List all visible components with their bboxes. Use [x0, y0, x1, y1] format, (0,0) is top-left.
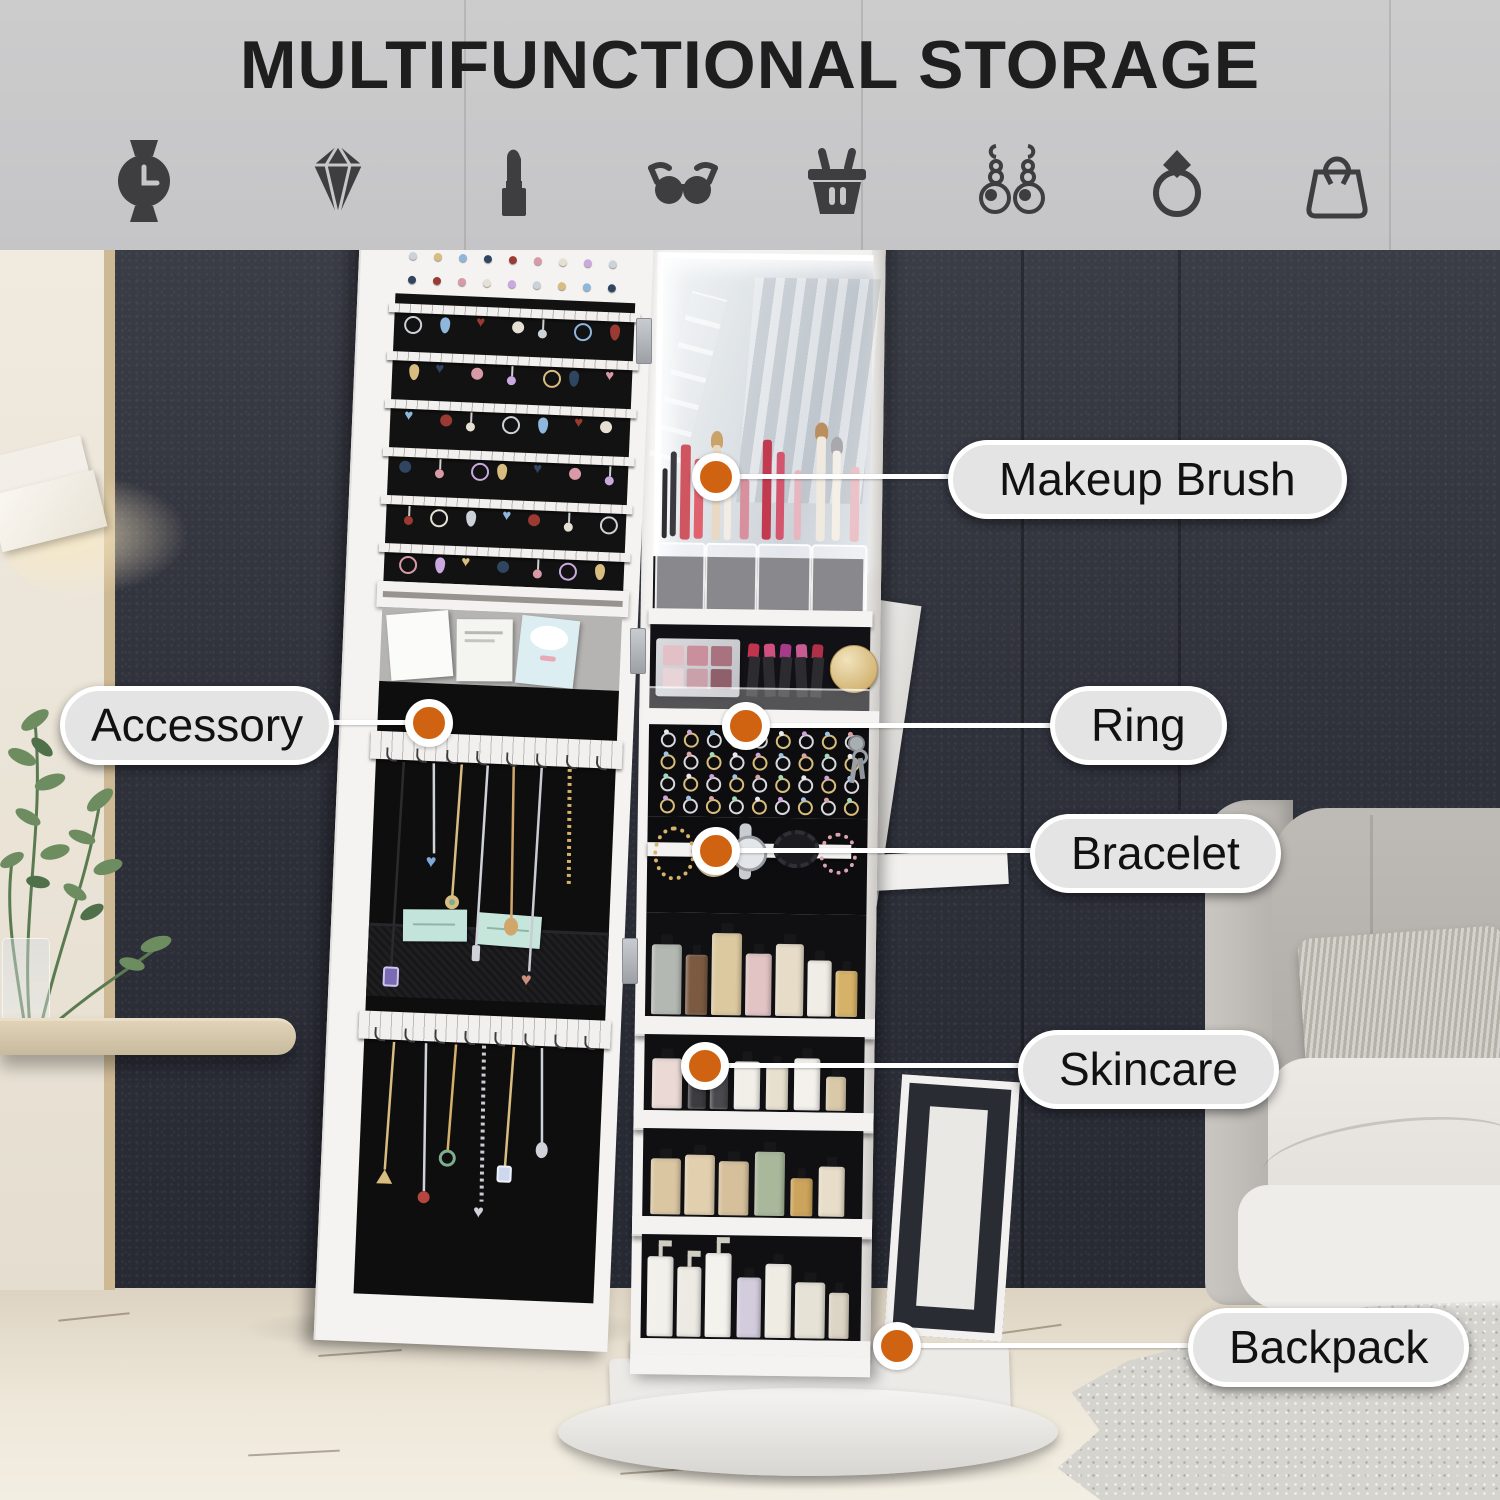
- bottle-cap: [815, 950, 825, 960]
- earring: ♥: [435, 361, 445, 376]
- earring: [559, 562, 578, 581]
- earring: [409, 364, 420, 380]
- earring: [404, 516, 413, 525]
- bottle: [736, 1277, 761, 1337]
- skincare-shelf: [640, 1234, 861, 1341]
- earring: [408, 506, 410, 516]
- bracelet-storage: [646, 816, 867, 915]
- earring: [600, 516, 619, 535]
- handbag-icon: [1292, 136, 1382, 226]
- earring: [569, 468, 581, 480]
- ring-item: [798, 778, 813, 793]
- ring-gem: [802, 731, 807, 736]
- ring-gem: [710, 730, 715, 735]
- ring-item: [821, 779, 836, 794]
- earring: [466, 422, 475, 431]
- brush-handle: [794, 470, 802, 540]
- stud-earring: [409, 252, 417, 260]
- earring-bar: [389, 303, 641, 323]
- bottle-cap: [835, 1283, 843, 1293]
- bottle: [764, 1264, 791, 1338]
- sunglasses-icon: [638, 136, 728, 226]
- hinge: [636, 318, 652, 364]
- cabinet-bottom: [630, 1354, 870, 1377]
- necklaces: ♥ ♥: [365, 761, 615, 1021]
- earring: [430, 509, 449, 528]
- ring-item: [798, 800, 813, 815]
- vase: [2, 938, 50, 1026]
- bottle-cap: [660, 1148, 672, 1158]
- ring-item: [798, 756, 813, 771]
- ring-icon: [1132, 136, 1222, 226]
- ring-gem: [687, 730, 692, 735]
- earring-bar: [383, 447, 635, 467]
- bottle: [807, 960, 832, 1016]
- mask-art: [540, 655, 556, 662]
- ring-gem: [686, 796, 691, 801]
- ring-gem: [732, 796, 737, 801]
- bottle: [766, 1066, 789, 1110]
- hook: [536, 754, 548, 768]
- ring-item: [752, 778, 767, 793]
- ring-item: [660, 776, 675, 791]
- earring: [497, 561, 509, 573]
- earring: [574, 323, 593, 342]
- ring-item: [684, 733, 699, 748]
- bottle-cap: [773, 1254, 784, 1264]
- callout-label-ring: Ring: [1050, 686, 1227, 765]
- ring-gem: [733, 752, 738, 757]
- stud-earring: [483, 279, 491, 287]
- ring-item: [707, 733, 722, 748]
- bottle-cap: [694, 1145, 706, 1155]
- bottle-cap: [832, 1067, 840, 1077]
- bottle-cap: [754, 944, 765, 954]
- earring: [600, 421, 612, 433]
- earring: [538, 329, 547, 338]
- earring: [610, 324, 621, 340]
- svg-text:♥: ♥: [473, 1201, 485, 1221]
- callout-label-backpack: Backpack: [1188, 1308, 1469, 1387]
- ring-gem: [687, 752, 692, 757]
- earring: [471, 463, 490, 482]
- necklaces: ♥: [354, 1041, 604, 1296]
- stud-earring: [608, 284, 616, 292]
- bottle-cap: [661, 934, 673, 944]
- ring-item: [822, 735, 837, 750]
- ring-item: [752, 756, 767, 771]
- hinge: [630, 628, 646, 674]
- sheet-mask: [515, 615, 580, 689]
- sheet-mask: [456, 619, 512, 681]
- callout-dot-accessory: [405, 699, 453, 747]
- ring-gem: [709, 796, 714, 801]
- hook: [566, 755, 578, 769]
- eyeshadow-pan: [711, 646, 732, 666]
- ring-gem: [824, 798, 829, 803]
- earring: [609, 466, 611, 476]
- earring-bar: [379, 543, 631, 563]
- callout-dot-backpack: [873, 1322, 921, 1370]
- bottle: [794, 1282, 825, 1338]
- earring: [537, 559, 539, 569]
- brush-handle: [680, 445, 691, 540]
- sheet-mask: [386, 610, 453, 681]
- svg-text:♥: ♥: [425, 851, 437, 871]
- stud-earring: [559, 258, 567, 266]
- necklace-panel: ♥ ♥ ♥: [354, 681, 619, 1304]
- bracelet-gold-chain: [653, 826, 696, 881]
- skincare-shelf: [642, 1128, 863, 1219]
- bottle-cap: [728, 1151, 740, 1161]
- earring: [439, 459, 441, 469]
- eyeshadow-pan: [687, 646, 708, 666]
- product-infographic: MULTIFUNCTIONAL STORAGE: [0, 0, 1500, 1500]
- rotating-base-disc: [558, 1388, 1058, 1476]
- bottle-cap: [745, 1267, 755, 1277]
- earring-panel: ♥♥♥♥♥♥♥♥: [383, 293, 635, 591]
- brush-handle: [762, 440, 772, 540]
- earring: [404, 316, 423, 335]
- ring-item: [661, 732, 676, 747]
- stud-earring: [583, 283, 591, 291]
- ring-item: [660, 798, 675, 813]
- bottle: [754, 1152, 785, 1216]
- earring: ♥: [502, 508, 512, 523]
- ring-item: [775, 800, 790, 815]
- callout-line-ring: [746, 723, 1052, 728]
- bottle: [828, 1293, 849, 1339]
- callout-line-skincare: [705, 1063, 1020, 1068]
- ring-item: [706, 799, 721, 814]
- earring: ♥: [605, 368, 615, 383]
- earring: [399, 556, 418, 575]
- bottle-cap: [784, 934, 795, 944]
- rear-shelf: [884, 1074, 1020, 1342]
- page-title: MULTIFUNCTIONAL STORAGE: [0, 26, 1500, 104]
- stud-earring: [509, 256, 517, 264]
- earring: [533, 569, 542, 578]
- stud-earring: [508, 280, 516, 288]
- bottle: [826, 1077, 846, 1111]
- ring-gem: [664, 751, 669, 756]
- earring: ♥: [574, 415, 584, 430]
- bottle-cap: [802, 1048, 813, 1058]
- bottle: [676, 1267, 701, 1337]
- earring: [470, 412, 472, 422]
- bottle: [685, 955, 708, 1015]
- brush-handle: [740, 479, 750, 539]
- shopping-basket-icon: [792, 136, 882, 226]
- earring: [605, 476, 614, 485]
- stud-earring: [534, 257, 542, 265]
- bottle: [818, 1167, 845, 1217]
- diamond-icon: [293, 136, 383, 226]
- bottle-cap: [842, 961, 851, 971]
- ring-gem: [755, 775, 760, 780]
- palette-pans: [663, 645, 734, 690]
- makeup-brush-area: [653, 496, 867, 617]
- earring: [440, 317, 451, 333]
- bottle: [711, 933, 742, 1015]
- ring-gem: [778, 797, 783, 802]
- bottle-cap: [721, 923, 733, 933]
- stud-earring: [609, 260, 617, 268]
- pump-nozzle: [717, 1237, 730, 1243]
- hook: [416, 748, 428, 762]
- makeup-shelf: [649, 624, 870, 711]
- bottle: [650, 1158, 681, 1214]
- earrings-icon: [968, 136, 1058, 226]
- hook: [374, 1027, 386, 1041]
- bottle-cap: [804, 1272, 816, 1282]
- earring: [440, 414, 452, 426]
- ring-gem: [663, 795, 668, 800]
- ring-item: [821, 800, 836, 815]
- ring-item: [775, 756, 790, 771]
- earring: [507, 376, 516, 385]
- sheet-mask-pocket: [379, 607, 622, 691]
- stud-earring: [459, 254, 467, 262]
- earring: ♥: [533, 461, 543, 476]
- callout-label-accessory: Accessory: [60, 686, 334, 765]
- brush-handle: [832, 451, 841, 541]
- ring-gem: [825, 732, 830, 737]
- ring-gem: [801, 775, 806, 780]
- stud-earring: [558, 282, 566, 290]
- bottle: [745, 953, 772, 1015]
- brush-handle: [816, 436, 826, 541]
- mask-art: [529, 624, 569, 652]
- callout-dot-ring: [722, 702, 770, 750]
- wall-seam: [1021, 250, 1024, 1290]
- bottle: [790, 1178, 813, 1216]
- earring: [528, 514, 540, 526]
- callout-line-bracelet: [716, 848, 1032, 853]
- earring: [502, 416, 521, 435]
- callout-line-backpack: [897, 1343, 1190, 1348]
- ring-gem: [779, 753, 784, 758]
- brush-handle: [662, 468, 668, 538]
- earring: [497, 464, 508, 480]
- ring-gem: [778, 775, 783, 780]
- earring: [568, 513, 570, 523]
- mask-print: [465, 631, 503, 634]
- earring: [512, 321, 524, 333]
- ring-gem: [779, 731, 784, 736]
- ring-item: [683, 777, 698, 792]
- bottle-cap: [827, 1157, 838, 1167]
- stud-earring: [584, 259, 592, 267]
- earring: [435, 557, 446, 573]
- beaded-bracelet: [819, 832, 858, 875]
- hook: [386, 747, 398, 761]
- mask-print: [465, 639, 495, 642]
- header-banner: MULTIFUNCTIONAL STORAGE: [0, 0, 1500, 250]
- ring-item: [799, 734, 814, 749]
- stud-earring: [484, 255, 492, 263]
- acrylic-cup: [811, 544, 868, 617]
- ring-gem: [755, 797, 760, 802]
- ring-item: [821, 757, 836, 772]
- callout-label-makeup-brush: Makeup Brush: [948, 440, 1347, 519]
- callout-label-skincare: Skincare: [1018, 1030, 1279, 1109]
- skincare-shelf: [645, 912, 866, 1019]
- ring-gem: [663, 773, 668, 778]
- ring-gem: [686, 774, 691, 779]
- ring-item: [729, 799, 744, 814]
- ring-item: [706, 777, 721, 792]
- hook: [434, 1030, 446, 1044]
- ring-gem: [801, 797, 806, 802]
- brush-handle: [670, 451, 677, 536]
- skincare-shelf: [644, 1034, 865, 1113]
- shelf-groove: [383, 591, 623, 607]
- hook: [404, 1028, 416, 1042]
- hook: [476, 751, 488, 765]
- bottle-cap: [742, 1051, 753, 1061]
- bottle: [647, 1256, 674, 1336]
- pump-nozzle: [688, 1251, 701, 1257]
- bottle-cap: [692, 945, 701, 955]
- ring-gem: [802, 753, 807, 758]
- svg-text:♥: ♥: [520, 969, 532, 989]
- ring-gem: [732, 774, 737, 779]
- stud-earring: [433, 277, 441, 285]
- earring: [595, 564, 606, 580]
- eyeshadow-pan: [663, 645, 684, 665]
- hook: [554, 1035, 566, 1049]
- bottle: [651, 944, 682, 1014]
- hook: [584, 1036, 596, 1050]
- hook: [506, 752, 518, 766]
- callout-line-makeup-brush: [716, 474, 950, 479]
- brush-handle: [776, 452, 785, 540]
- ring-item: [683, 755, 698, 770]
- earring: [435, 469, 444, 478]
- earring: [538, 417, 549, 433]
- ring-item: [729, 777, 744, 792]
- earring: [542, 319, 544, 329]
- stud-earring: [533, 281, 541, 289]
- earring: [471, 367, 483, 379]
- bottle-cap: [661, 1048, 673, 1058]
- ring-item: [776, 734, 791, 749]
- ring-gem: [824, 776, 829, 781]
- hook: [494, 1032, 506, 1046]
- callout-dot-bracelet: [692, 827, 740, 875]
- ring-gem: [847, 798, 852, 803]
- callout-label-bracelet: Bracelet: [1030, 814, 1281, 893]
- ring-item: [775, 778, 790, 793]
- ring-item: [683, 799, 698, 814]
- pump-nozzle: [659, 1240, 672, 1246]
- bottle: [775, 944, 804, 1016]
- earring: ♥: [476, 315, 486, 330]
- ring-item: [660, 754, 675, 769]
- earring: [511, 366, 513, 376]
- ring-gem: [756, 753, 761, 758]
- earring: ♥: [404, 408, 414, 423]
- bottle: [684, 1155, 715, 1215]
- ring-item: [706, 755, 721, 770]
- ring-item: [844, 801, 859, 816]
- bottle: [704, 1253, 731, 1337]
- bottle: [734, 1061, 761, 1109]
- hook: [446, 750, 458, 764]
- ring-item: [752, 800, 767, 815]
- ring-gem: [710, 752, 715, 757]
- hook: [464, 1031, 476, 1045]
- stud-earring: [458, 278, 466, 286]
- earring: [543, 369, 562, 388]
- earring: [399, 461, 411, 473]
- acrylic-cup: [705, 543, 758, 616]
- bottle: [718, 1161, 749, 1215]
- callout-dot-skincare: [681, 1042, 729, 1090]
- cabinet-door: ♥♥♥♥♥♥♥♥: [314, 226, 654, 1352]
- hook: [596, 756, 608, 770]
- bottle: [835, 971, 858, 1017]
- earring: [466, 510, 477, 526]
- ring-gem: [664, 729, 669, 734]
- earring: [569, 371, 580, 387]
- jewelry-cabinet: [630, 226, 886, 1377]
- ring-item: [729, 755, 744, 770]
- ring-gem: [709, 774, 714, 779]
- wood-shelf: [0, 1018, 296, 1055]
- bottle-cap: [797, 1168, 806, 1178]
- earring: ♥: [461, 554, 471, 569]
- bottle-cap: [764, 1142, 776, 1152]
- bottle: [652, 1058, 683, 1108]
- acrylic-cup: [655, 542, 706, 615]
- watch-icon: [99, 136, 189, 226]
- acrylic-cup: [757, 544, 812, 617]
- earring: [564, 522, 573, 531]
- callout-dot-makeup-brush: [692, 453, 740, 501]
- lipstick-icon: [469, 136, 559, 226]
- bed-base: [1238, 1185, 1500, 1310]
- hinge: [622, 938, 638, 984]
- hook: [524, 1033, 536, 1047]
- stud-earring: [434, 253, 442, 261]
- stud-earring: [408, 276, 416, 284]
- ring-gem: [825, 754, 830, 759]
